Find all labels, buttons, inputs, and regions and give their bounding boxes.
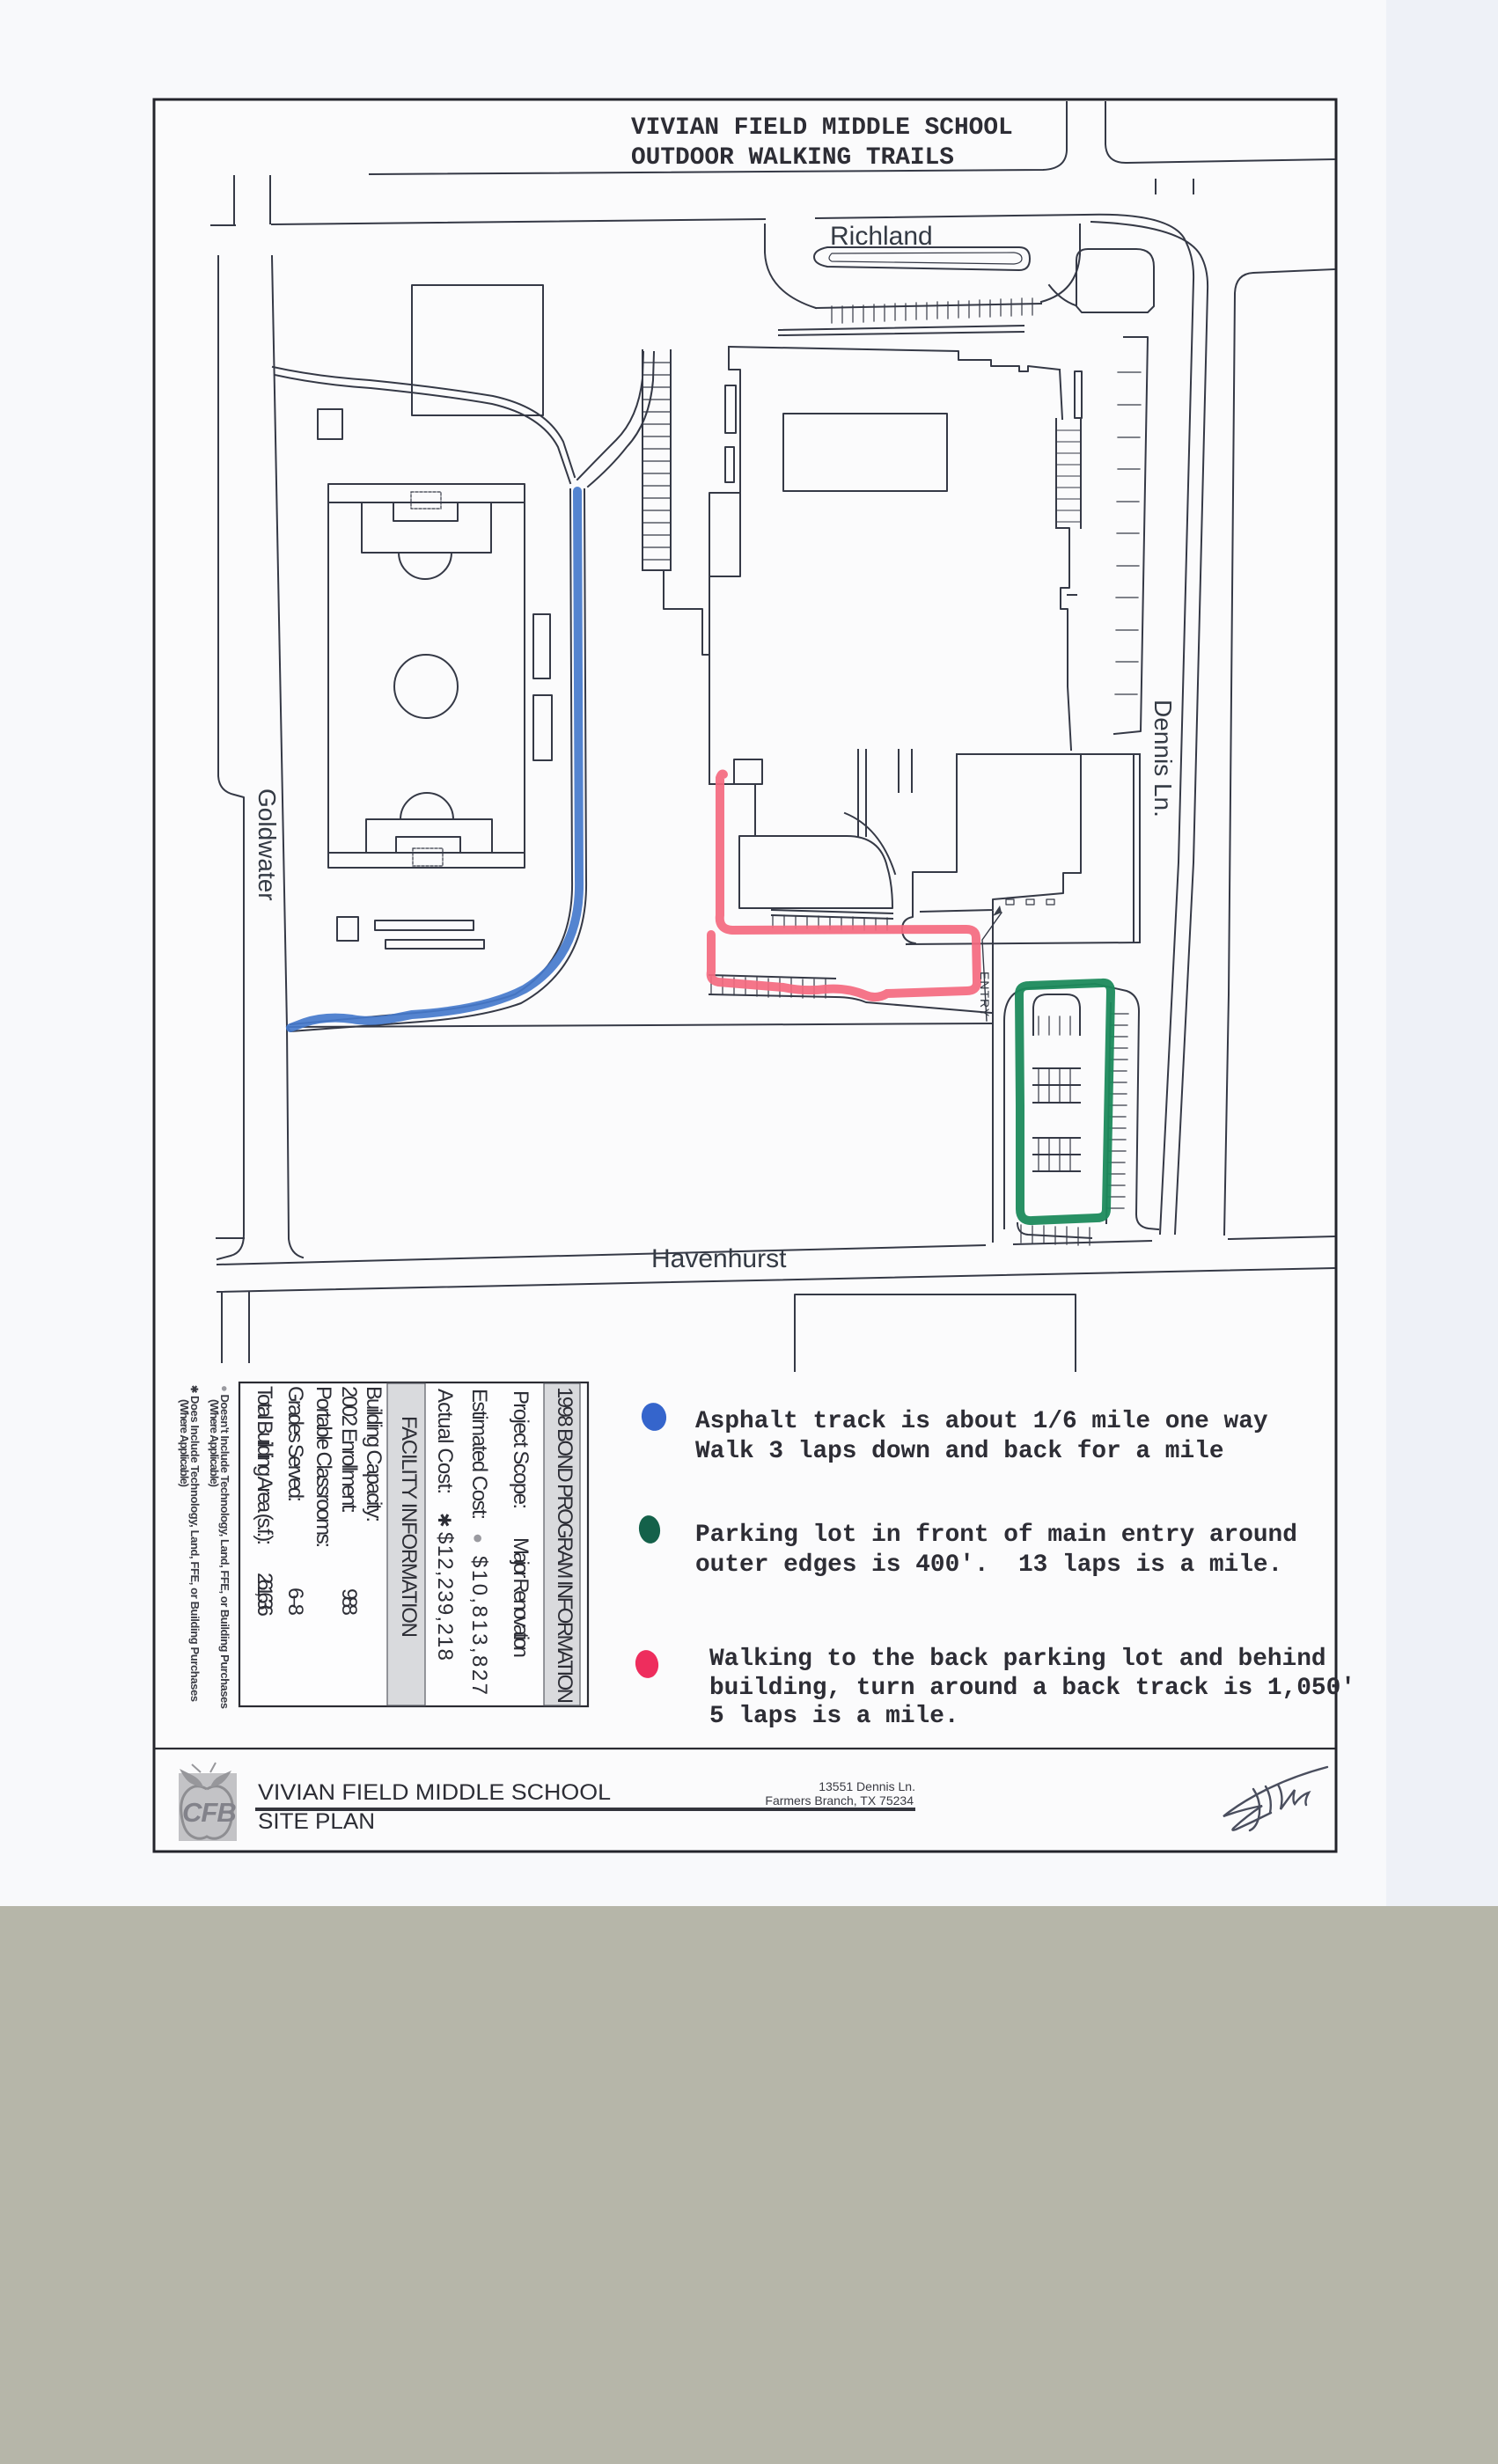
svg-text:●: ●: [468, 1533, 488, 1544]
svg-text:SITE PLAN: SITE PLAN: [258, 1809, 375, 1834]
svg-text:ENTRY: ENTRY: [978, 972, 992, 1017]
svg-text:building, turn around a back t: building, turn around a back track is 1,…: [709, 1675, 1355, 1702]
svg-text:6–8: 6–8: [283, 1588, 307, 1616]
svg-text:Actual Cost:: Actual Cost:: [433, 1389, 457, 1494]
svg-text:261,636: 261,636: [253, 1573, 276, 1617]
svg-text:Richland: Richland: [830, 222, 933, 251]
svg-text:Walk 3 laps down and back for: Walk 3 laps down and back for a mile: [695, 1438, 1224, 1465]
svg-text:Major Renovation: Major Renovation: [509, 1537, 532, 1658]
svg-text:$10,813,827: $10,813,827: [467, 1556, 491, 1695]
svg-text:Portable Classrooms:: Portable Classrooms:: [312, 1386, 335, 1548]
svg-text:$12,239,218: $12,239,218: [433, 1532, 457, 1661]
svg-text:CFB: CFB: [182, 1797, 236, 1828]
svg-text:Dennis Ln.: Dennis Ln.: [1149, 700, 1177, 818]
svg-text:Goldwater: Goldwater: [253, 788, 281, 901]
svg-text:2002 Enrollment:: 2002 Enrollment:: [337, 1386, 361, 1514]
svg-text:Grades Served:: Grades Served:: [283, 1386, 307, 1502]
svg-text:Total Building Area (s.f.):: Total Building Area (s.f.):: [253, 1386, 276, 1545]
svg-text:Havenhurst: Havenhurst: [651, 1244, 787, 1273]
svg-text:Building Capacity:: Building Capacity:: [362, 1386, 386, 1522]
svg-text:VIVIAN FIELD MIDDLE SCHOOL: VIVIAN FIELD MIDDLE SCHOOL: [258, 1780, 611, 1805]
svg-text:Parking lot in front of main e: Parking lot in front of main entry aroun…: [695, 1522, 1297, 1549]
svg-text:Walking to the back parking lo: Walking to the back parking lot and behi…: [709, 1646, 1326, 1673]
svg-text:OUTDOOR WALKING TRAILS: OUTDOOR WALKING TRAILS: [631, 144, 954, 172]
svg-text:Asphalt track is about 1/6 mil: Asphalt track is about 1/6 mile one way: [695, 1408, 1268, 1435]
svg-text:1998 BOND PROGRAM INFORMATION: 1998 BOND PROGRAM INFORMATION: [553, 1387, 576, 1704]
svg-text:5 laps is a mile.: 5 laps is a mile.: [709, 1703, 959, 1730]
svg-text:13551 Dennis Ln.: 13551 Dennis Ln.: [819, 1779, 915, 1793]
svg-text:Project Scope:: Project Scope:: [509, 1390, 532, 1509]
svg-text:FACILITY INFORMATION: FACILITY INFORMATION: [397, 1416, 421, 1638]
svg-text:outer edges is 400'. 13 laps: outer edges is 400'. 13 laps is a mile.: [695, 1551, 1282, 1579]
svg-text:Estimated Cost:: Estimated Cost:: [467, 1389, 491, 1520]
svg-text:988: 988: [337, 1588, 361, 1616]
svg-text:Farmers Branch, TX 75234: Farmers Branch, TX 75234: [765, 1793, 914, 1808]
svg-text:(Where Applicable): (Where Applicable): [208, 1399, 221, 1487]
svg-text:✱: ✱: [434, 1513, 453, 1528]
svg-text:VIVIAN FIELD MIDDLE SCHOOL: VIVIAN FIELD MIDDLE SCHOOL: [631, 114, 1013, 142]
svg-text:(Where Applicable): (Where Applicable): [178, 1399, 191, 1487]
